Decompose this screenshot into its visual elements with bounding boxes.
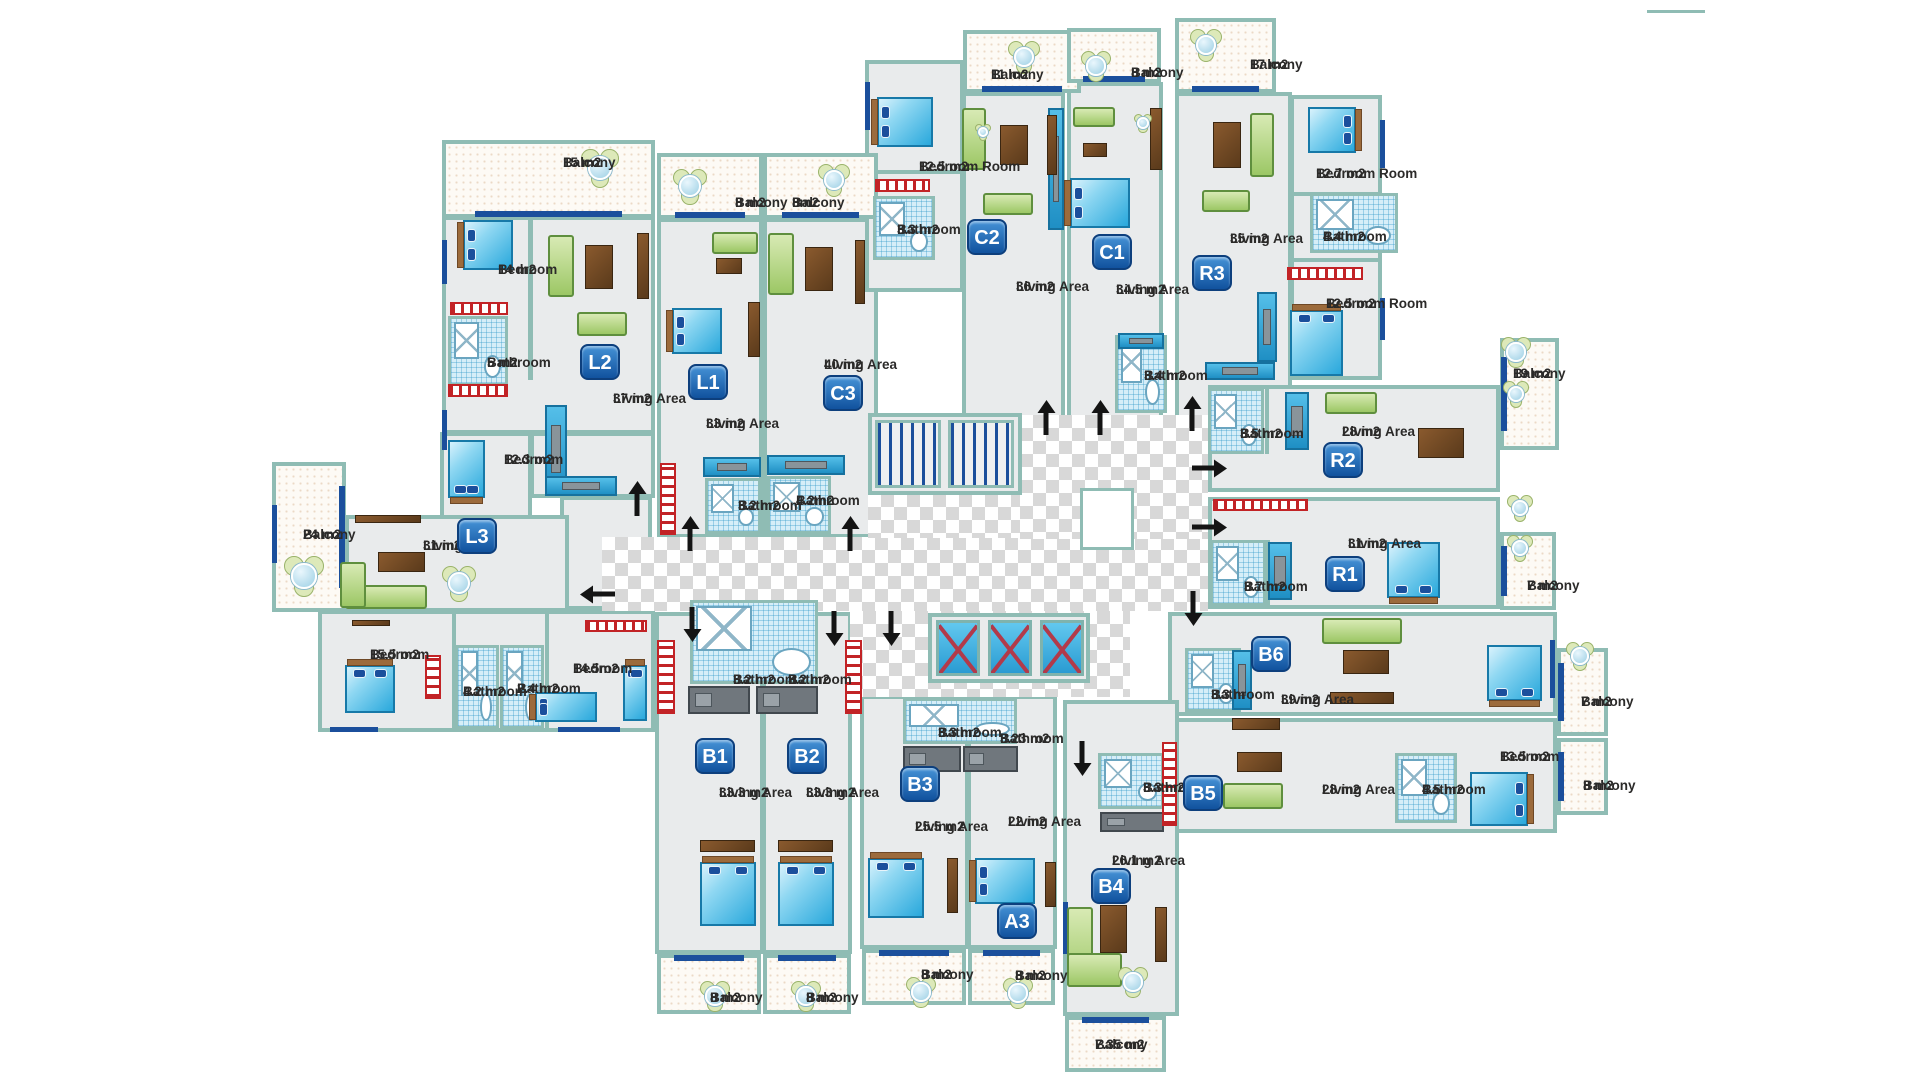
headboard xyxy=(969,860,976,902)
wood-furniture xyxy=(1100,905,1127,953)
pillow xyxy=(979,866,988,879)
unit-badge-l1: L1 xyxy=(688,364,728,400)
pillow xyxy=(979,883,988,896)
label-line2: 7 m2 xyxy=(1527,578,1558,594)
label-line2: 13.5 m2 xyxy=(1500,749,1550,765)
kitchen-counter-dark xyxy=(963,746,1018,772)
label-line2: 31 m2 xyxy=(423,538,461,554)
label-line2: 28 m2 xyxy=(1342,424,1380,440)
shower xyxy=(454,322,479,359)
core-void xyxy=(1080,488,1134,550)
sofa xyxy=(983,193,1033,215)
stove xyxy=(969,753,984,765)
entry-arrow-up xyxy=(1190,409,1195,431)
unit-badge-c2: C2 xyxy=(967,219,1007,255)
label-line2: 3.4 m2 xyxy=(1144,368,1186,384)
stove xyxy=(562,482,600,491)
headboard xyxy=(1064,180,1071,226)
pillow xyxy=(813,866,826,875)
wall-segment xyxy=(1290,258,1382,262)
label-line2: 3.3 m2 xyxy=(897,222,939,238)
kitchen-counter-dark xyxy=(756,686,818,714)
pillow xyxy=(353,669,366,678)
kitchen-counter-dark xyxy=(688,686,750,714)
label-line2: 5 m2 xyxy=(487,355,518,371)
label-line2: 17 m2 xyxy=(1250,57,1288,73)
label-line2: 4.2 m2 xyxy=(463,684,505,700)
window-bar xyxy=(558,727,620,732)
radiator xyxy=(1213,499,1308,511)
pillow xyxy=(676,333,685,346)
label-line2: 8 m2 xyxy=(1015,968,1046,984)
label-line2: 19 m2 xyxy=(1513,366,1551,382)
label-line2: 3.2 m2 xyxy=(738,498,780,514)
headboard xyxy=(457,222,464,268)
pillow xyxy=(454,485,467,494)
stove xyxy=(763,693,780,706)
unit-badge-l3: L3 xyxy=(457,518,497,554)
sofa xyxy=(1073,107,1115,127)
sofa xyxy=(712,232,758,254)
pillow xyxy=(1515,804,1524,817)
sofa xyxy=(1325,392,1377,414)
label-line2: 33.3 m2 xyxy=(806,785,856,801)
plant-table xyxy=(675,171,705,201)
pillow xyxy=(708,866,721,875)
wood-furniture xyxy=(1232,718,1280,730)
unit-badge-r1: R1 xyxy=(1325,556,1365,592)
window-bar xyxy=(272,505,277,563)
pillow xyxy=(467,248,476,261)
stove xyxy=(695,693,712,706)
r1-bathroom xyxy=(1210,540,1266,606)
label-line2: 28 m2 xyxy=(1322,782,1360,798)
label-line2: 3.5 m2 xyxy=(1240,426,1282,442)
headboard xyxy=(1355,109,1362,151)
window-bar xyxy=(1082,1017,1149,1023)
wood-furniture xyxy=(1343,650,1389,674)
label-line2: 8 m2 xyxy=(1131,65,1162,81)
label-line2: 12.5 m2 xyxy=(1326,296,1376,312)
label-line2: 4.5 m2 xyxy=(1422,782,1464,798)
headboard xyxy=(702,856,754,863)
label-line2: 31 m2 xyxy=(1348,536,1386,552)
label-line2: 37 m2 xyxy=(613,391,651,407)
plant-table xyxy=(1083,53,1109,79)
wood-furniture xyxy=(352,620,390,626)
wood-furniture xyxy=(1213,122,1241,168)
window-bar xyxy=(1550,640,1555,698)
table-top xyxy=(1086,56,1105,75)
stove xyxy=(909,753,925,765)
radiator xyxy=(585,620,647,632)
label-line2: 2.4 m2 xyxy=(517,681,559,697)
stove xyxy=(785,461,826,470)
label-line2: 36 m2 xyxy=(1016,279,1054,295)
radiator xyxy=(448,384,508,397)
pillow xyxy=(1074,206,1083,219)
window-bar xyxy=(1192,86,1259,92)
kitchen-counter xyxy=(1205,362,1275,380)
label-line2: 25.5 m2 xyxy=(915,819,965,835)
entry-arrow-up xyxy=(1044,413,1049,435)
unit-badge-c1: C1 xyxy=(1092,234,1132,270)
pillow xyxy=(1521,688,1534,697)
pillow xyxy=(1419,585,1432,594)
shower xyxy=(1214,394,1237,429)
wood-furniture xyxy=(585,245,613,289)
window-bar xyxy=(782,212,859,218)
label-line2: 3.2 m2 xyxy=(788,672,830,688)
unit-badge-b1: B1 xyxy=(695,738,735,774)
shower xyxy=(1104,759,1132,788)
label-line2: 24 m2 xyxy=(303,527,341,543)
wood-furniture xyxy=(1083,143,1107,157)
toilet xyxy=(805,507,824,526)
label-line2: 4.4 m2 xyxy=(1323,229,1365,245)
entry-arrow-up xyxy=(635,494,640,516)
label-line2: 8 m2 xyxy=(806,990,837,1006)
table-top xyxy=(448,572,470,594)
sofa xyxy=(577,312,627,336)
unit-badge-a3: A3 xyxy=(997,903,1037,939)
pillow xyxy=(1495,688,1508,697)
window-bar xyxy=(983,950,1040,956)
label-line2: 14 m2 xyxy=(498,262,536,278)
entry-arrow-up xyxy=(688,529,693,551)
c1-bed xyxy=(1070,178,1130,228)
r3-balcony xyxy=(1175,18,1276,93)
entry-arrow-right xyxy=(1192,466,1214,471)
plant-table xyxy=(976,125,990,139)
window-bar xyxy=(442,410,447,450)
elevator xyxy=(988,620,1032,676)
label-line2: 7.35 m2 xyxy=(1095,1037,1145,1053)
label-line2: 8 m2 xyxy=(1583,778,1614,794)
wood-furniture xyxy=(748,302,760,357)
pillow xyxy=(1343,115,1352,128)
pillow xyxy=(1395,585,1408,594)
wood-furniture xyxy=(778,840,833,852)
stair-flight-left xyxy=(875,420,941,488)
label-line2: 14.5m2 xyxy=(573,661,619,677)
label-line2: 22 m2 xyxy=(1008,814,1046,830)
elevator xyxy=(1040,620,1084,676)
shower xyxy=(1316,199,1354,230)
label-line2: 8 m2 xyxy=(710,990,741,1006)
unit-badge-b5: B5 xyxy=(1183,775,1223,811)
sofa xyxy=(1322,618,1402,644)
label-line2: 39 m2 xyxy=(1281,692,1319,708)
headboard xyxy=(1389,597,1438,604)
headboard xyxy=(1489,700,1540,707)
kitchen-counter-dark xyxy=(1100,812,1164,832)
shower xyxy=(711,484,734,513)
window-bar xyxy=(675,212,746,218)
wood-furniture xyxy=(1045,862,1056,907)
plant-table xyxy=(1509,537,1531,559)
wood-furniture xyxy=(700,840,755,852)
pillow xyxy=(786,866,799,875)
pillow xyxy=(903,862,916,871)
wall-segment xyxy=(1265,388,1269,454)
l2-bed-123 xyxy=(448,440,485,498)
pillow xyxy=(676,316,685,329)
window-bar xyxy=(442,240,447,284)
table-top xyxy=(911,982,930,1001)
headboard xyxy=(450,497,483,504)
pillow xyxy=(881,106,890,119)
label-line2: 15 m2 xyxy=(563,155,601,171)
sofa xyxy=(1223,783,1283,809)
wood-furniture xyxy=(805,247,833,291)
unit-badge-b3: B3 xyxy=(900,766,940,802)
pillow xyxy=(881,125,890,138)
headboard xyxy=(780,856,832,863)
c2-bed xyxy=(877,97,933,147)
window-bar xyxy=(879,950,948,956)
table-top xyxy=(1571,647,1589,665)
elevator xyxy=(936,620,980,676)
entry-arrow-down xyxy=(1191,591,1196,613)
table-top xyxy=(679,175,701,197)
radiator xyxy=(875,179,930,192)
b6-bed xyxy=(1487,645,1542,701)
b2-bed xyxy=(778,862,834,926)
label-line2: 7 m2 xyxy=(1581,694,1612,710)
label-line2: 12.3 m2 xyxy=(504,452,554,468)
l1-bed xyxy=(672,308,722,354)
wood-furniture xyxy=(637,233,649,299)
label-line2: 8 m2 xyxy=(921,967,952,983)
b3-bed xyxy=(868,858,924,918)
entry-arrow-right xyxy=(1192,525,1214,530)
l3-bed-155 xyxy=(345,665,395,713)
sofa xyxy=(1067,953,1122,987)
wood-furniture xyxy=(378,552,425,572)
pillow xyxy=(467,229,476,242)
plant-table xyxy=(1509,497,1531,519)
sofa xyxy=(1250,113,1274,177)
window-bar xyxy=(1380,120,1385,168)
unit-badge-c3: C3 xyxy=(823,375,863,411)
plant-table xyxy=(1568,644,1592,668)
wood-furniture xyxy=(716,258,742,274)
wood-furniture xyxy=(355,515,421,523)
label-line2: 15.5 m2 xyxy=(370,647,420,663)
table-top xyxy=(1123,972,1142,991)
floor-plan: Balcony15 m2Bedroom14 m2Bathroom5 m2Livi… xyxy=(0,0,1920,1080)
window-bar xyxy=(865,82,870,130)
r2-bathroom xyxy=(1208,388,1264,454)
table-top xyxy=(1506,342,1525,361)
pillow xyxy=(735,866,748,875)
label-line2: 26.1 m2 xyxy=(1112,853,1162,869)
kitchen-counter xyxy=(1118,333,1164,349)
shower xyxy=(1191,654,1214,688)
kitchen-counter xyxy=(545,476,617,496)
label-line2: 33 m2 xyxy=(706,416,744,432)
headboard xyxy=(870,852,922,859)
shower xyxy=(909,704,959,727)
label-line2: 33.3 m2 xyxy=(719,785,769,801)
label-line2: 40 m2 xyxy=(824,357,862,373)
label-line2: 3.3 m2 xyxy=(1143,780,1185,796)
pillow xyxy=(1322,314,1335,323)
r3-bed-127 xyxy=(1308,107,1356,153)
radiator xyxy=(660,463,676,535)
sofa xyxy=(768,233,794,295)
r3-bed-125 xyxy=(1290,310,1343,376)
headboard xyxy=(871,99,878,145)
wood-furniture xyxy=(855,240,865,304)
shower xyxy=(696,606,752,651)
stove xyxy=(1107,818,1125,827)
label-line2: 4.2m2 xyxy=(796,493,834,509)
label-line2: 3.2 m2 xyxy=(733,672,775,688)
entry-arrow-down xyxy=(889,611,894,633)
pillow xyxy=(1298,314,1311,323)
l2-balcony xyxy=(442,140,655,218)
table-top xyxy=(291,563,316,588)
wood-furniture xyxy=(1047,115,1057,175)
table-top xyxy=(1137,117,1149,129)
kitchen-counter xyxy=(1257,292,1277,362)
entry-arrow-up xyxy=(1098,413,1103,435)
unit-badge-r3: R3 xyxy=(1192,255,1232,291)
kitchen-counter xyxy=(767,455,845,475)
b5-balcony xyxy=(1557,738,1608,815)
plant-table xyxy=(1120,969,1146,995)
label-line2: 3.3 m2 xyxy=(938,725,980,741)
pillow xyxy=(1343,132,1352,145)
a3-bed xyxy=(975,858,1035,904)
pillow xyxy=(374,669,387,678)
shower xyxy=(1216,546,1239,581)
radiator xyxy=(450,302,508,315)
label-line2: 8m2 xyxy=(792,195,819,211)
entry-arrow-down xyxy=(1080,741,1085,763)
window-bar xyxy=(982,86,1061,92)
stove xyxy=(717,463,747,472)
unit-badge-l2: L2 xyxy=(580,344,620,380)
wood-furniture xyxy=(1237,752,1282,772)
stove xyxy=(1129,338,1153,345)
window-bar xyxy=(330,727,378,732)
b5-bed xyxy=(1470,772,1528,826)
label-line2: 34.5 m2 xyxy=(1116,282,1166,298)
plant-table xyxy=(1505,383,1527,405)
stove xyxy=(1263,309,1272,346)
pillow xyxy=(539,703,548,716)
sofa xyxy=(1202,190,1250,212)
headboard xyxy=(529,694,536,720)
plant-table xyxy=(1503,339,1529,365)
stove xyxy=(1222,367,1259,375)
headboard xyxy=(666,310,673,352)
sofa xyxy=(340,562,366,608)
radiator xyxy=(1287,267,1363,280)
pillow xyxy=(1515,782,1524,795)
plant-table xyxy=(1192,31,1220,59)
window-bar xyxy=(778,955,836,961)
wood-furniture xyxy=(947,858,958,913)
label-line2: 35 m2 xyxy=(1230,231,1268,247)
corridor-mid xyxy=(868,494,1020,538)
table-top xyxy=(1008,983,1027,1002)
entry-arrow-down xyxy=(690,607,695,629)
entry-arrow-down xyxy=(832,611,837,633)
window-bar xyxy=(475,211,623,217)
label-line2: 8 m2 xyxy=(735,195,766,211)
label-line2: 3.3 m xyxy=(1211,687,1246,703)
b1-bed xyxy=(700,862,756,926)
unit-badge-b6: B6 xyxy=(1251,636,1291,672)
pillow xyxy=(876,862,889,871)
pillow xyxy=(466,485,479,494)
entry-arrow-left xyxy=(593,592,615,597)
plant-table xyxy=(1135,115,1151,131)
radiator xyxy=(657,640,675,714)
label-line2: 3.7 m2 xyxy=(1244,579,1286,595)
wall-segment xyxy=(1647,10,1705,13)
wood-furniture xyxy=(1418,428,1464,458)
unit-badge-b4: B4 xyxy=(1091,868,1131,904)
unit-badge-b2: B2 xyxy=(787,738,827,774)
stair-flight-right xyxy=(948,420,1014,488)
label-line2: 12.5 m2 xyxy=(919,159,969,175)
plant-table xyxy=(444,568,474,598)
pillow xyxy=(1074,187,1083,200)
window-bar xyxy=(674,955,743,961)
unit-badge-r2: R2 xyxy=(1323,442,1363,478)
label-line2: 11 m2 xyxy=(991,67,1029,83)
window-bar xyxy=(1501,546,1507,596)
label-line2: 12.7 m2 xyxy=(1316,166,1366,182)
window-bar xyxy=(1558,663,1564,721)
wood-furniture xyxy=(1155,907,1167,962)
plant-table xyxy=(820,166,848,194)
plant-table xyxy=(287,559,321,593)
headboard xyxy=(1527,774,1534,824)
kitchen-counter xyxy=(703,457,761,477)
entry-arrow-up xyxy=(848,529,853,551)
l2-bathroom xyxy=(448,316,508,386)
label-line2: 3.23 m2 xyxy=(1000,731,1050,747)
